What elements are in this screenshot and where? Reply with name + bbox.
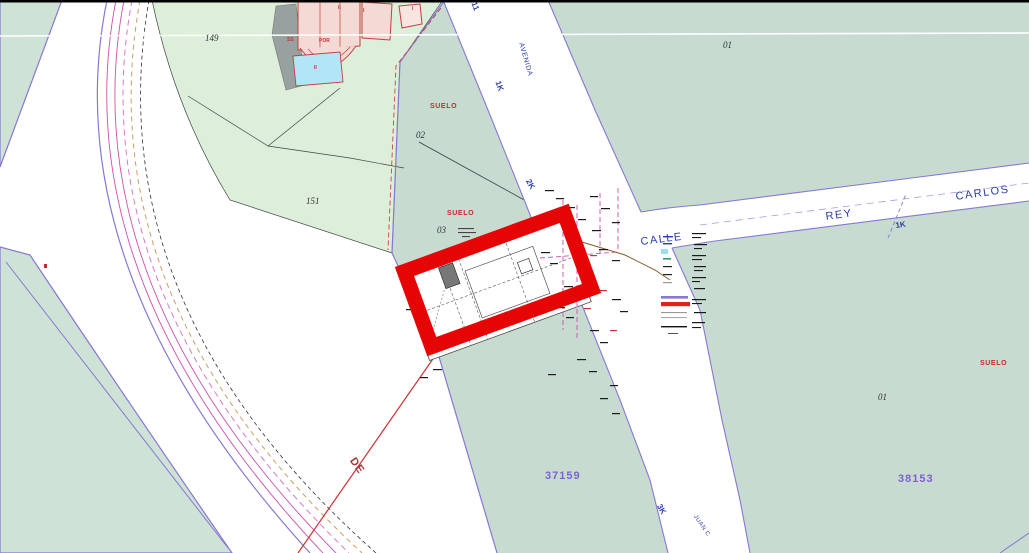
parcel-label-149: 149	[205, 34, 219, 43]
road-code-1k-rey: 1K	[895, 221, 906, 230]
building-label-ss: SS	[287, 38, 294, 43]
building-label-i: I	[363, 9, 364, 14]
suelo-label-right: SUELO	[980, 360, 1007, 367]
top-border	[0, 0, 1029, 3]
parcel-label-02: 02	[416, 131, 425, 140]
cadastral-map-viewport[interactable]: 149 151 02 03 01 01 SUELO SUELO SUELO 37…	[0, 0, 1029, 553]
building-label-ii: II	[338, 6, 341, 11]
ref-number-38153: 38153	[898, 474, 934, 485]
parcel-label-01-top: 01	[723, 41, 732, 50]
pool-label-ii: II	[314, 66, 317, 71]
suelo-label-top: SUELO	[430, 103, 457, 110]
ref-number-37159: 37159	[545, 471, 581, 482]
suelo-label-mid: SUELO	[447, 210, 474, 217]
parcel-label-03: 03	[437, 226, 446, 235]
parcel-label-151: 151	[306, 197, 320, 206]
building-label-por: POR	[319, 39, 330, 44]
map-canvas	[0, 0, 1029, 553]
building-label-i2: I	[412, 7, 413, 12]
parcel-label-01-bottom: 01	[878, 393, 887, 402]
